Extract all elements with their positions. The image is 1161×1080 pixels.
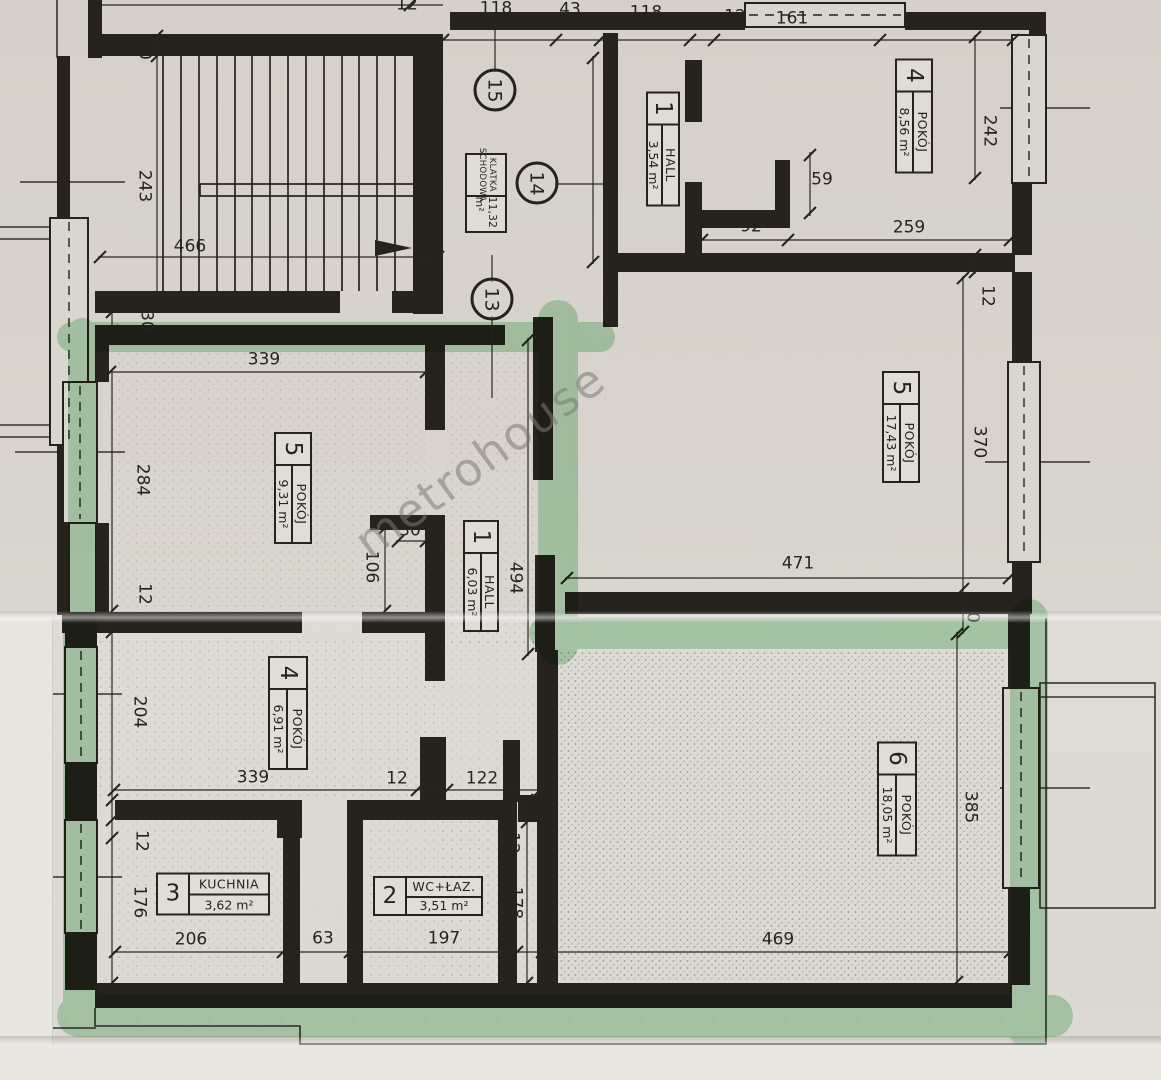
dimension-text: 284 xyxy=(134,464,151,496)
dimension-text: 161 xyxy=(776,11,808,28)
dimension-text: 12 xyxy=(724,9,746,26)
dimension-text: 176 xyxy=(131,886,148,918)
dimension-text: 30 xyxy=(136,38,153,60)
dimension-text: 12 xyxy=(979,285,996,307)
dimension-text: 12 xyxy=(133,830,150,852)
room-label-kuchnia: 3 KUCHNIA 3,62 m² xyxy=(156,873,270,916)
dimension-text: 178 xyxy=(507,887,524,919)
dimension-text: 259 xyxy=(893,220,925,237)
room-label-pokoj-856: 4 POKÓJ 8,56 m² xyxy=(895,59,933,174)
room-label-hall-354: 1 HALL 3,54 m² xyxy=(646,92,680,207)
room-label-klatka-schodowa: KLATKA SCHODOWA 11,32 m² xyxy=(465,153,507,233)
room-label-pokoj-931: 5 POKÓJ 9,31 m² xyxy=(274,432,312,544)
dimension-text: 59 xyxy=(811,172,833,189)
dimension-text: 243 xyxy=(136,170,153,202)
balcony-outline xyxy=(1040,683,1155,908)
staircase-name: KLATKA SCHODOWA xyxy=(467,155,505,197)
dimension-text: 206 xyxy=(175,932,207,949)
unit-circle-14: 14 xyxy=(516,162,559,205)
room-number: 5 xyxy=(884,373,918,405)
dimension-text: 92 xyxy=(740,219,762,236)
floorplan-drawing xyxy=(0,0,1161,1080)
dimension-text: 118 xyxy=(630,5,662,22)
dimension-text: 43 xyxy=(559,2,581,19)
room-number: 5 xyxy=(276,434,310,466)
room-name-area: POKÓJ 17,43 m² xyxy=(884,405,918,481)
dimension-text: 204 xyxy=(131,696,148,728)
dimension-text: 12 xyxy=(136,583,153,605)
room-name-area: KUCHNIA 3,62 m² xyxy=(190,875,268,914)
page-edge-bottom xyxy=(0,1045,1161,1080)
dimension-text: 385 xyxy=(962,791,979,823)
room-label-pokoj-1805: 6 POKÓJ 18,05 m² xyxy=(877,742,917,857)
dimension-text: 106 xyxy=(363,551,380,583)
dimension-text: 339 xyxy=(237,770,269,787)
dimension-text: 118 xyxy=(480,1,512,18)
room-number: 1 xyxy=(465,522,497,554)
room-number: 4 xyxy=(897,61,931,93)
dimension-text: 466 xyxy=(174,239,206,256)
dimension-text: 242 xyxy=(981,115,998,147)
dimension-text: 339 xyxy=(248,352,280,369)
room-label-hall-603: 1 HALL 6,03 m² xyxy=(463,520,499,632)
dimension-text: 30 xyxy=(138,310,155,332)
room-number: 3 xyxy=(158,875,190,914)
room-number: 4 xyxy=(270,658,306,690)
dimension-text: 12 xyxy=(386,771,408,788)
room-label-wc-laz: 2 WC+ŁAZ. 3,51 m² xyxy=(373,876,483,916)
room-name-area: POKÓJ 6,91 m² xyxy=(270,690,306,768)
dimension-text: 12 xyxy=(396,0,418,14)
scanned-floor-plan-page: 1 HALL 3,54 m² 4 POKÓJ 8,56 m² 5 POKÓJ 1… xyxy=(0,0,1161,1080)
dimension-text: 30 xyxy=(399,523,421,540)
page-edge-left xyxy=(0,618,53,1080)
dimension-text: 197 xyxy=(428,931,460,948)
room-name-area: POKÓJ 18,05 m² xyxy=(879,776,915,855)
dimension-text: 300 xyxy=(601,93,618,125)
dimension-text: 63 xyxy=(312,931,334,948)
dimension-text: 471 xyxy=(782,556,814,573)
room-label-pokoj-1743: 5 POKÓJ 17,43 m² xyxy=(882,371,920,483)
unit-circle-13: 13 xyxy=(471,278,514,321)
room-name-area: HALL 3,54 m² xyxy=(648,126,678,205)
dimension-text: 12 xyxy=(504,832,521,854)
room-name-area: POKÓJ 9,31 m² xyxy=(276,466,310,542)
dimension-text: 370 xyxy=(971,426,988,458)
unit-circle-15: 15 xyxy=(474,69,517,112)
room-number: 2 xyxy=(375,878,407,914)
staircase-area: 11,32 m² xyxy=(467,197,505,231)
room-number: 6 xyxy=(879,744,915,776)
dimension-text: 30 xyxy=(964,601,981,623)
room-number: 1 xyxy=(648,94,678,126)
room-name-area: HALL 6,03 m² xyxy=(465,554,497,630)
dimension-text: 122 xyxy=(466,771,498,788)
room-name-area: POKÓJ 8,56 m² xyxy=(897,93,931,172)
room-label-pokoj-691: 4 POKÓJ 6,91 m² xyxy=(268,656,308,770)
dimension-text: 469 xyxy=(762,932,794,949)
dimension-text: 494 xyxy=(507,562,524,594)
room-name-area: WC+ŁAZ. 3,51 m² xyxy=(407,878,481,914)
